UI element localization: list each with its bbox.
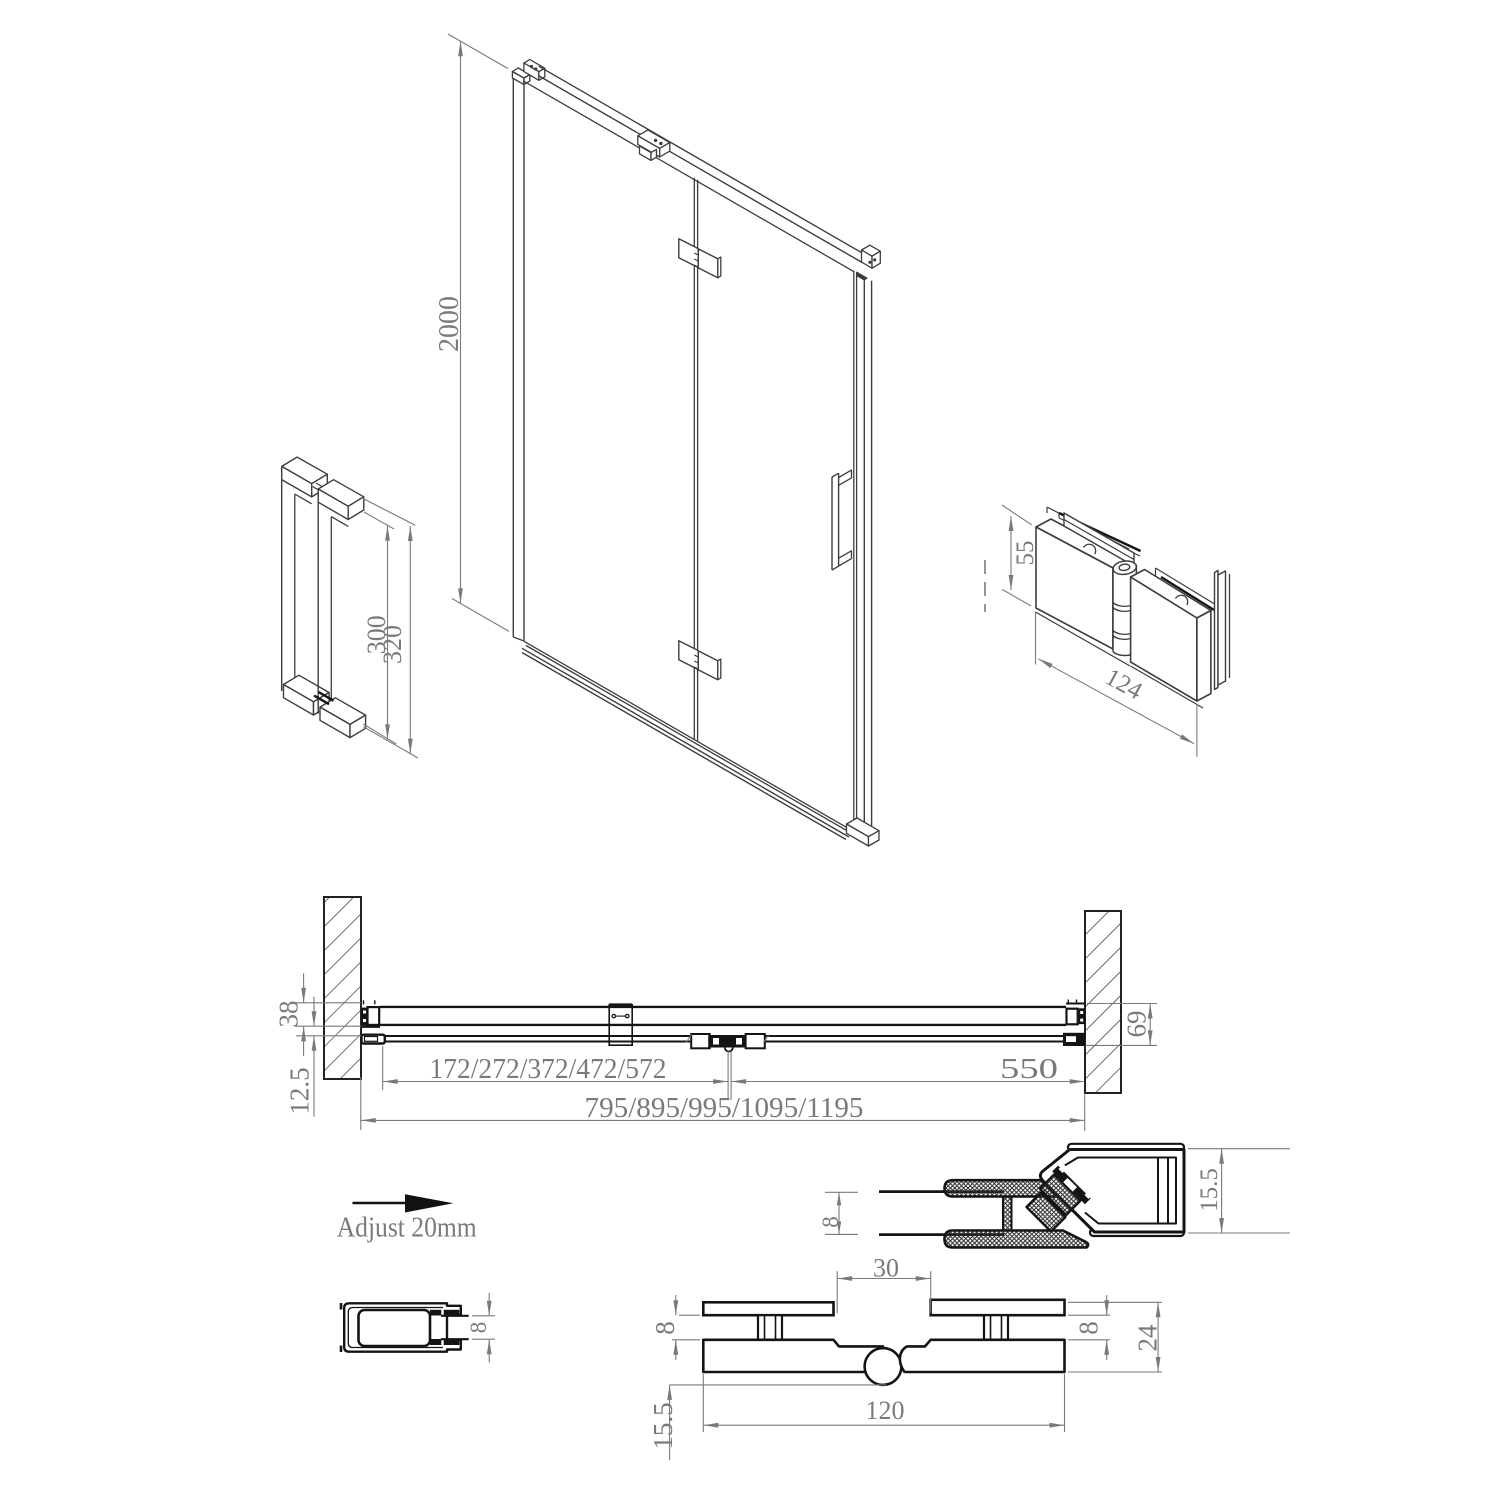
svg-text:8: 8: [466, 1322, 491, 1334]
svg-text:172/272/372/472/572: 172/272/372/472/572: [430, 1053, 667, 1085]
svg-text:15.5: 15.5: [1196, 1168, 1223, 1212]
svg-text:320: 320: [378, 625, 407, 664]
svg-text:8: 8: [1074, 1321, 1104, 1335]
svg-text:Adjust 20mm: Adjust 20mm: [337, 1213, 477, 1244]
svg-text:120: 120: [866, 1396, 905, 1425]
svg-text:550: 550: [1000, 1053, 1058, 1085]
svg-text:15.5: 15.5: [648, 1402, 678, 1449]
svg-text:38: 38: [274, 1001, 304, 1028]
svg-text:12.5: 12.5: [285, 1067, 315, 1114]
svg-text:24: 24: [1133, 1324, 1163, 1352]
svg-text:8: 8: [650, 1321, 680, 1335]
svg-text:55: 55: [1012, 541, 1039, 566]
svg-text:795/895/995/1095/1195: 795/895/995/1095/1195: [585, 1092, 864, 1124]
svg-text:69: 69: [1122, 1011, 1152, 1038]
svg-text:30: 30: [873, 1254, 899, 1283]
svg-text:8: 8: [818, 1216, 843, 1228]
svg-text:2000: 2000: [434, 296, 465, 352]
